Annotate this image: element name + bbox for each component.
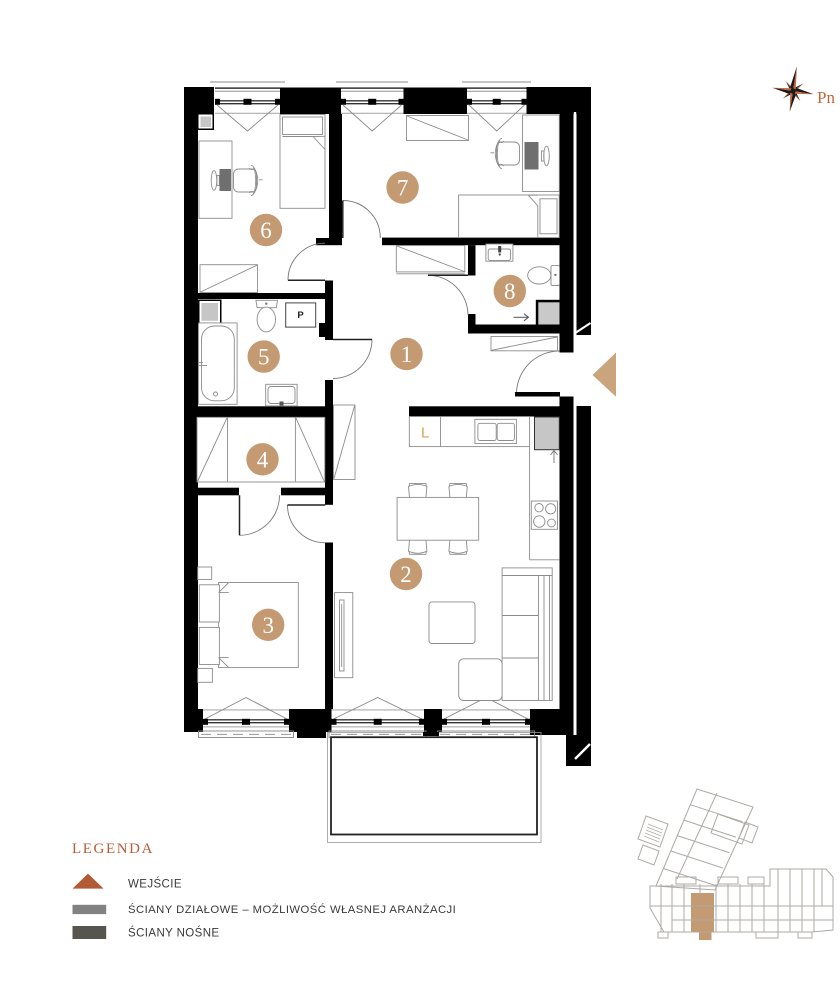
svg-text:Pn: Pn [817, 88, 835, 107]
svg-text:8: 8 [504, 279, 516, 304]
svg-text:1: 1 [401, 342, 413, 367]
svg-text:L: L [421, 425, 429, 442]
svg-text:LEGENDA: LEGENDA [72, 841, 154, 857]
svg-text:3: 3 [262, 613, 274, 638]
svg-text:7: 7 [397, 176, 409, 201]
svg-text:6: 6 [260, 218, 272, 243]
svg-text:ŚCIANY NOŚNE: ŚCIANY NOŚNE [128, 927, 220, 940]
svg-text:2: 2 [400, 562, 412, 587]
svg-text:ŚCIANY DZIAŁOWE – MOŻLIWOŚĆ WŁ: ŚCIANY DZIAŁOWE – MOŻLIWOŚĆ WŁASNEJ ARAN… [128, 903, 456, 916]
svg-text:WEJŚCIE: WEJŚCIE [128, 878, 182, 891]
svg-text:5: 5 [258, 345, 270, 370]
svg-text:4: 4 [257, 447, 269, 472]
svg-text:P: P [297, 310, 304, 321]
